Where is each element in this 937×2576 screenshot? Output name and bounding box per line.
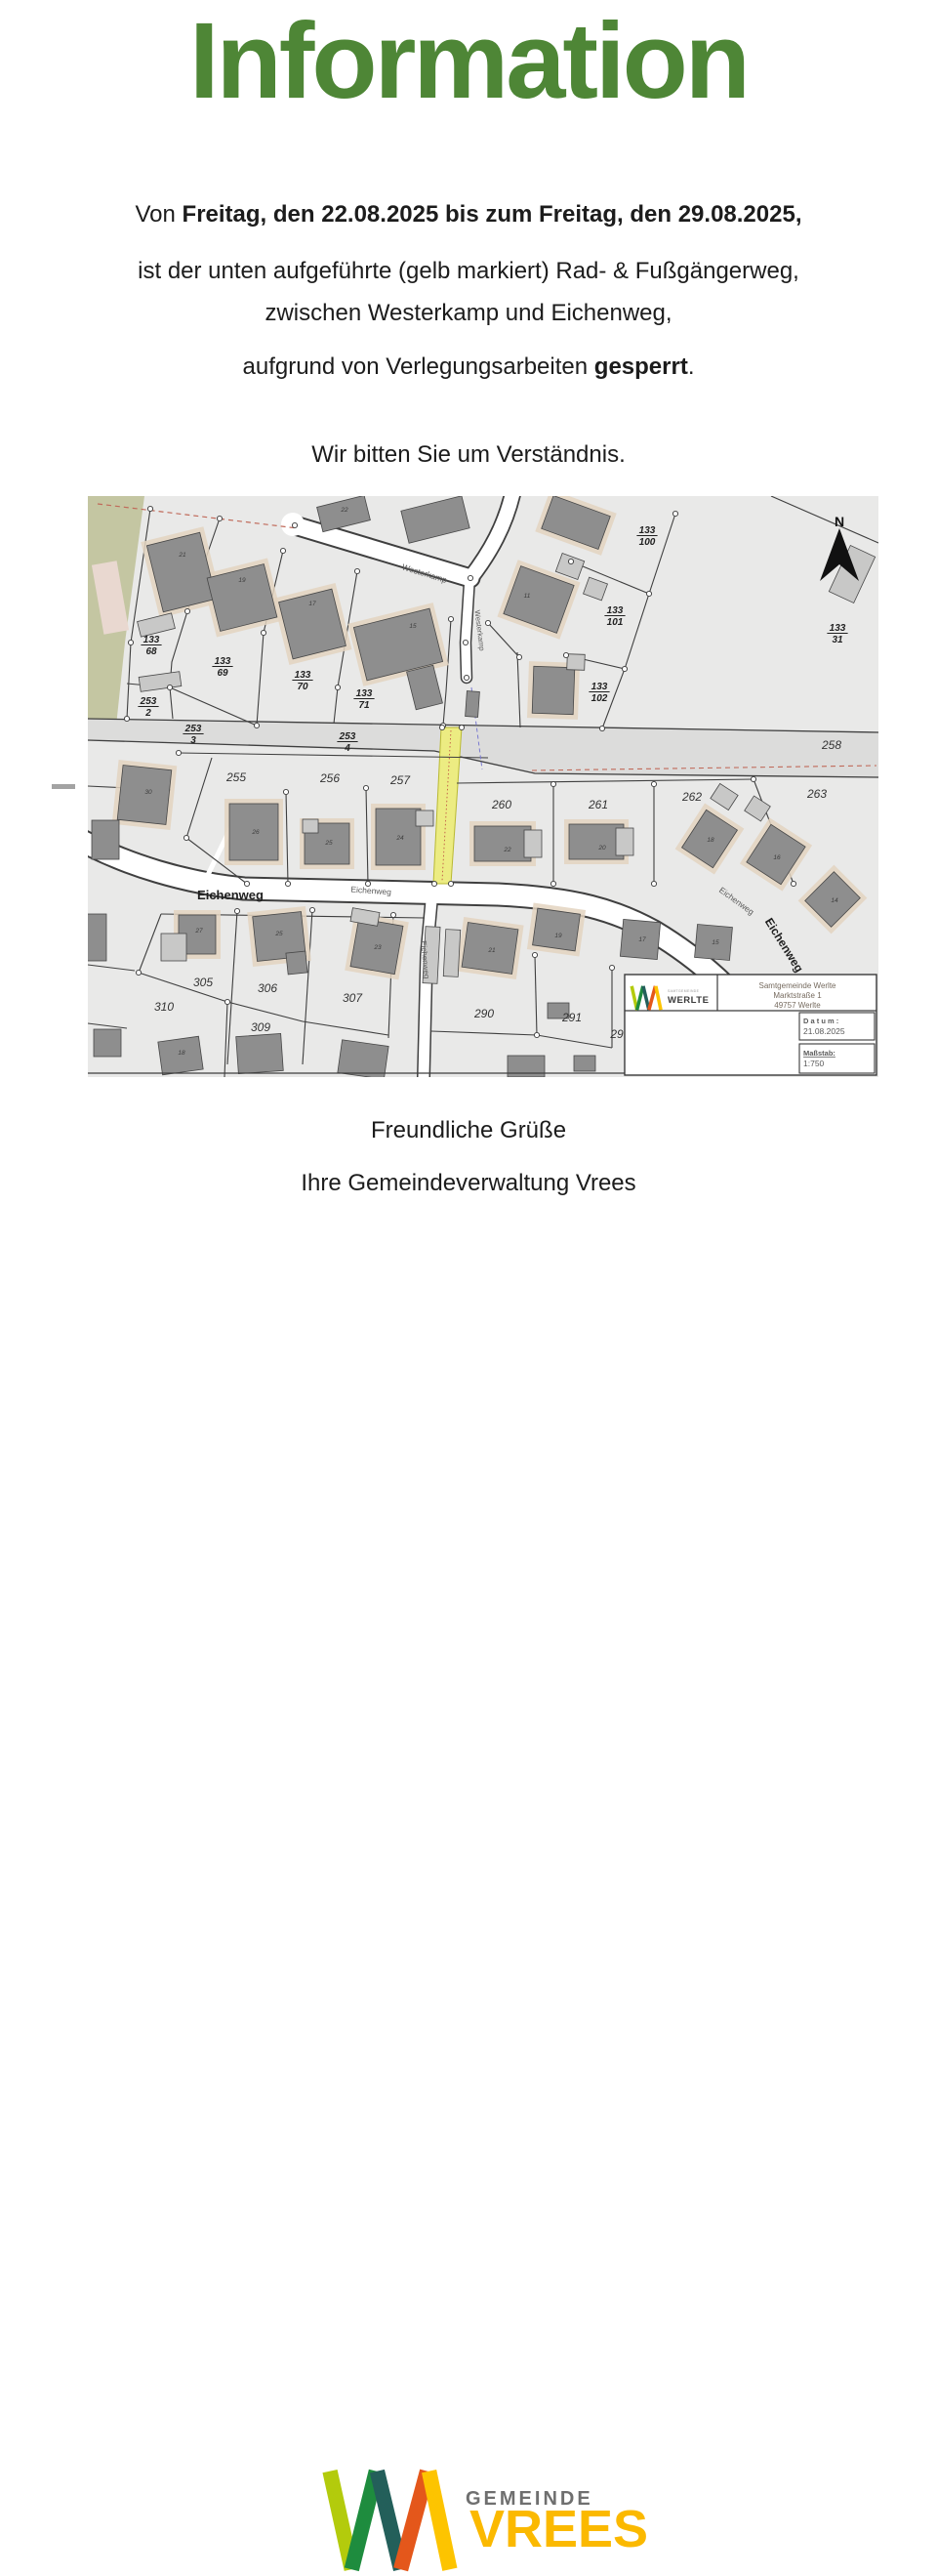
house-number: 20 xyxy=(597,845,606,852)
closing-greeting: Freundliche Grüße xyxy=(0,1115,937,1145)
street-label: Eichenweg xyxy=(197,888,264,902)
house-number: 22 xyxy=(503,847,511,853)
parcel-number: 253 xyxy=(184,724,202,734)
parcel-number: 306 xyxy=(258,981,277,995)
house-number: 19 xyxy=(554,933,562,939)
house-number: 25 xyxy=(274,931,283,937)
parcel-number: 69 xyxy=(217,668,228,679)
parcel-number: 305 xyxy=(193,976,213,989)
legend-address-1: Samtgemeinde Werlte xyxy=(759,981,837,990)
parcel-number: 256 xyxy=(319,771,340,785)
parcel-number: 310 xyxy=(154,1000,174,1014)
parcel-number: 100 xyxy=(639,537,656,548)
house-number: 18 xyxy=(707,837,714,844)
house-number: 25 xyxy=(324,840,333,847)
notice-dates-line: Von Freitag, den 22.08.2025 bis zum Frei… xyxy=(0,199,937,229)
parcel-number: 253 xyxy=(140,696,157,707)
parcel-number: 263 xyxy=(806,787,827,801)
parcel-number: 133 xyxy=(639,525,656,536)
house-number: 21 xyxy=(178,552,186,559)
parcel-number: 261 xyxy=(588,798,608,811)
margin-dash-artifact xyxy=(52,784,75,789)
parcel-number: 68 xyxy=(145,646,157,657)
parcel-number: 133 xyxy=(591,682,608,692)
parcel-number: 133 xyxy=(356,688,373,699)
notice-between-line: zwischen Westerkamp und Eichenweg, xyxy=(0,298,937,328)
parcel-number: 291 xyxy=(561,1011,582,1024)
parcel-number: 257 xyxy=(389,773,411,787)
house-number: 17 xyxy=(638,936,646,943)
parcel-number: 133 xyxy=(830,623,846,634)
map-legend: SAMTGEMEINDE WERLTE Samtgemeinde Werlte … xyxy=(625,975,876,1075)
house-number: 17 xyxy=(308,601,316,607)
brand-vrees-label: VREES xyxy=(469,2499,648,2559)
legend-date-value: 21.08.2025 xyxy=(803,1026,845,1036)
parcel-number: 262 xyxy=(681,790,702,804)
house-number: 30 xyxy=(144,789,152,796)
house-number: 24 xyxy=(395,835,404,842)
cadastral-map-svg: 1336813369133701337125322533253413310013… xyxy=(88,496,878,1077)
parcel-number: 2 xyxy=(144,708,151,719)
parcel-number: 258 xyxy=(821,738,841,752)
parcel-number: 307 xyxy=(343,991,363,1005)
p1-prefix: Von xyxy=(135,201,182,228)
legend-date-label: D a t u m : xyxy=(803,1017,838,1025)
cadastral-map: 1336813369133701337125322533253413310013… xyxy=(88,496,878,1077)
p3-bold-gesperrt: gesperrt xyxy=(594,353,688,380)
house-number: 21 xyxy=(487,947,496,954)
parcel-number: 255 xyxy=(225,770,246,784)
page-title: Information xyxy=(0,0,937,129)
p1-bold-dates: Freitag, den 22.08.2025 bis zum Freitag,… xyxy=(183,201,802,228)
p3-suffix: . xyxy=(688,353,695,380)
notice-reason-line: aufgrund von Verlegungsarbeiten gesperrt… xyxy=(0,352,937,382)
parcel-number: 309 xyxy=(251,1020,270,1034)
house-number: 23 xyxy=(373,944,382,951)
parcel-number: 31 xyxy=(832,635,843,645)
parcel-number: 253 xyxy=(339,731,356,742)
parcel-number: 101 xyxy=(607,617,624,628)
parcel-number: 102 xyxy=(591,693,608,704)
parcel-number: 70 xyxy=(297,682,308,692)
parcel-number: 71 xyxy=(358,700,370,711)
house-number: 26 xyxy=(251,829,260,836)
house-number: 22 xyxy=(340,507,348,514)
parcel-number: 3 xyxy=(190,735,196,746)
legend-org-small: SAMTGEMEINDE xyxy=(668,989,700,993)
house-number: 15 xyxy=(712,939,719,946)
legend-address-2: Marktstraße 1 xyxy=(773,991,822,1000)
closing-sender: Ihre Gemeindeverwaltung Vrees xyxy=(0,1168,937,1198)
p3-prefix: aufgrund von Verlegungsarbeiten xyxy=(243,353,594,380)
parcel-number: 133 xyxy=(607,605,624,616)
house-number: 11 xyxy=(524,593,531,600)
notice-apology-line: Wir bitten Sie um Verständnis. xyxy=(0,439,937,470)
parcel-number: 133 xyxy=(295,670,311,681)
notice-path-line: ist der unten aufgeführte (gelb markiert… xyxy=(0,256,937,286)
vrees-brand-block: GEMEINDE VREES xyxy=(0,1226,937,1360)
north-label: N xyxy=(835,514,844,529)
house-number: 18 xyxy=(178,1050,185,1057)
parcel-number: 4 xyxy=(344,743,350,754)
house-number: 14 xyxy=(831,897,838,904)
house-number: 15 xyxy=(409,623,417,630)
parcel-number: 260 xyxy=(491,798,511,811)
parcel-number: 290 xyxy=(473,1007,494,1020)
legend-address-3: 49757 Werlte xyxy=(774,1001,821,1010)
legend-org-name: WERLTE xyxy=(668,995,709,1006)
vrees-logo-icon xyxy=(314,2461,463,2576)
parcel-number: 133 xyxy=(215,656,231,667)
house-number: 19 xyxy=(238,577,246,584)
parcel-number: 133 xyxy=(143,635,160,645)
parcel-number: 29 xyxy=(609,1027,624,1041)
notice-page: { "title": "Information", "paragraphs": … xyxy=(0,0,937,1360)
legend-scale-label: Maßstab: xyxy=(803,1049,835,1058)
house-number: 16 xyxy=(773,854,781,861)
house-number: 27 xyxy=(194,928,203,935)
legend-scale-value: 1:750 xyxy=(803,1059,825,1068)
